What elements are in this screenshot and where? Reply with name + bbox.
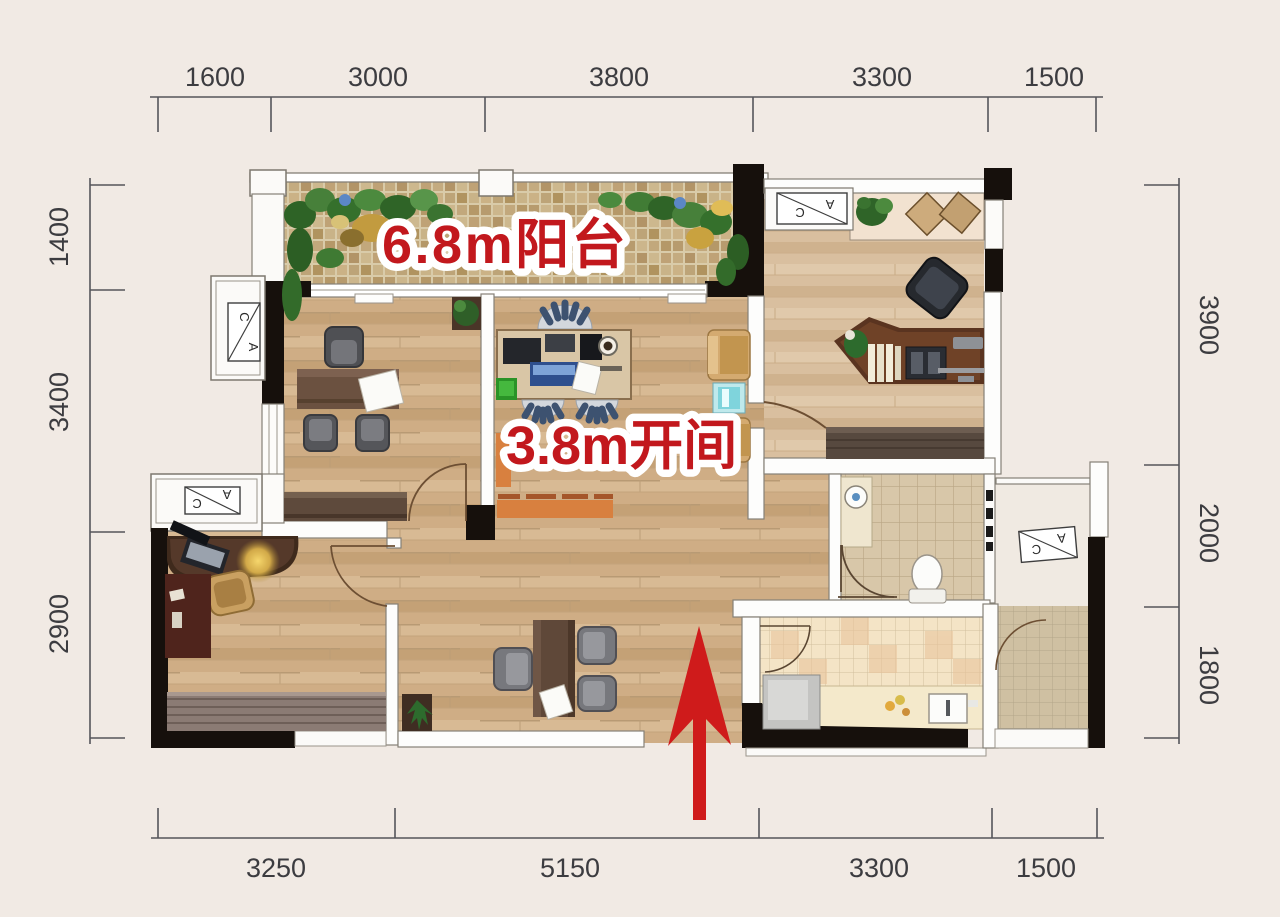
svg-text:5150: 5150 [540, 853, 600, 883]
svg-text:1800: 1800 [1194, 645, 1224, 705]
svg-text:3300: 3300 [849, 853, 909, 883]
svg-text:1600: 1600 [185, 62, 245, 92]
svg-text:A: A [222, 487, 231, 502]
svg-text:1400: 1400 [44, 207, 74, 267]
svg-text:1500: 1500 [1024, 62, 1084, 92]
svg-text:3800: 3800 [589, 62, 649, 92]
svg-text:A: A [825, 197, 834, 212]
svg-text:1500: 1500 [1016, 853, 1076, 883]
svg-text:3000: 3000 [348, 62, 408, 92]
svg-text:3400: 3400 [44, 372, 74, 432]
svg-text:3900: 3900 [1194, 295, 1224, 355]
svg-text:C: C [1031, 542, 1042, 558]
svg-text:3300: 3300 [852, 62, 912, 92]
svg-text:A: A [246, 343, 261, 352]
svg-text:2900: 2900 [44, 594, 74, 654]
svg-text:3.8m开间: 3.8m开间 [506, 416, 737, 476]
svg-text:2000: 2000 [1194, 503, 1224, 563]
svg-text:C: C [795, 205, 804, 220]
svg-text:6.8m阳台: 6.8m阳台 [382, 215, 628, 275]
svg-text:C: C [237, 312, 252, 321]
svg-text:3250: 3250 [246, 853, 306, 883]
svg-text:A: A [1056, 530, 1066, 546]
svg-text:C: C [192, 496, 201, 511]
